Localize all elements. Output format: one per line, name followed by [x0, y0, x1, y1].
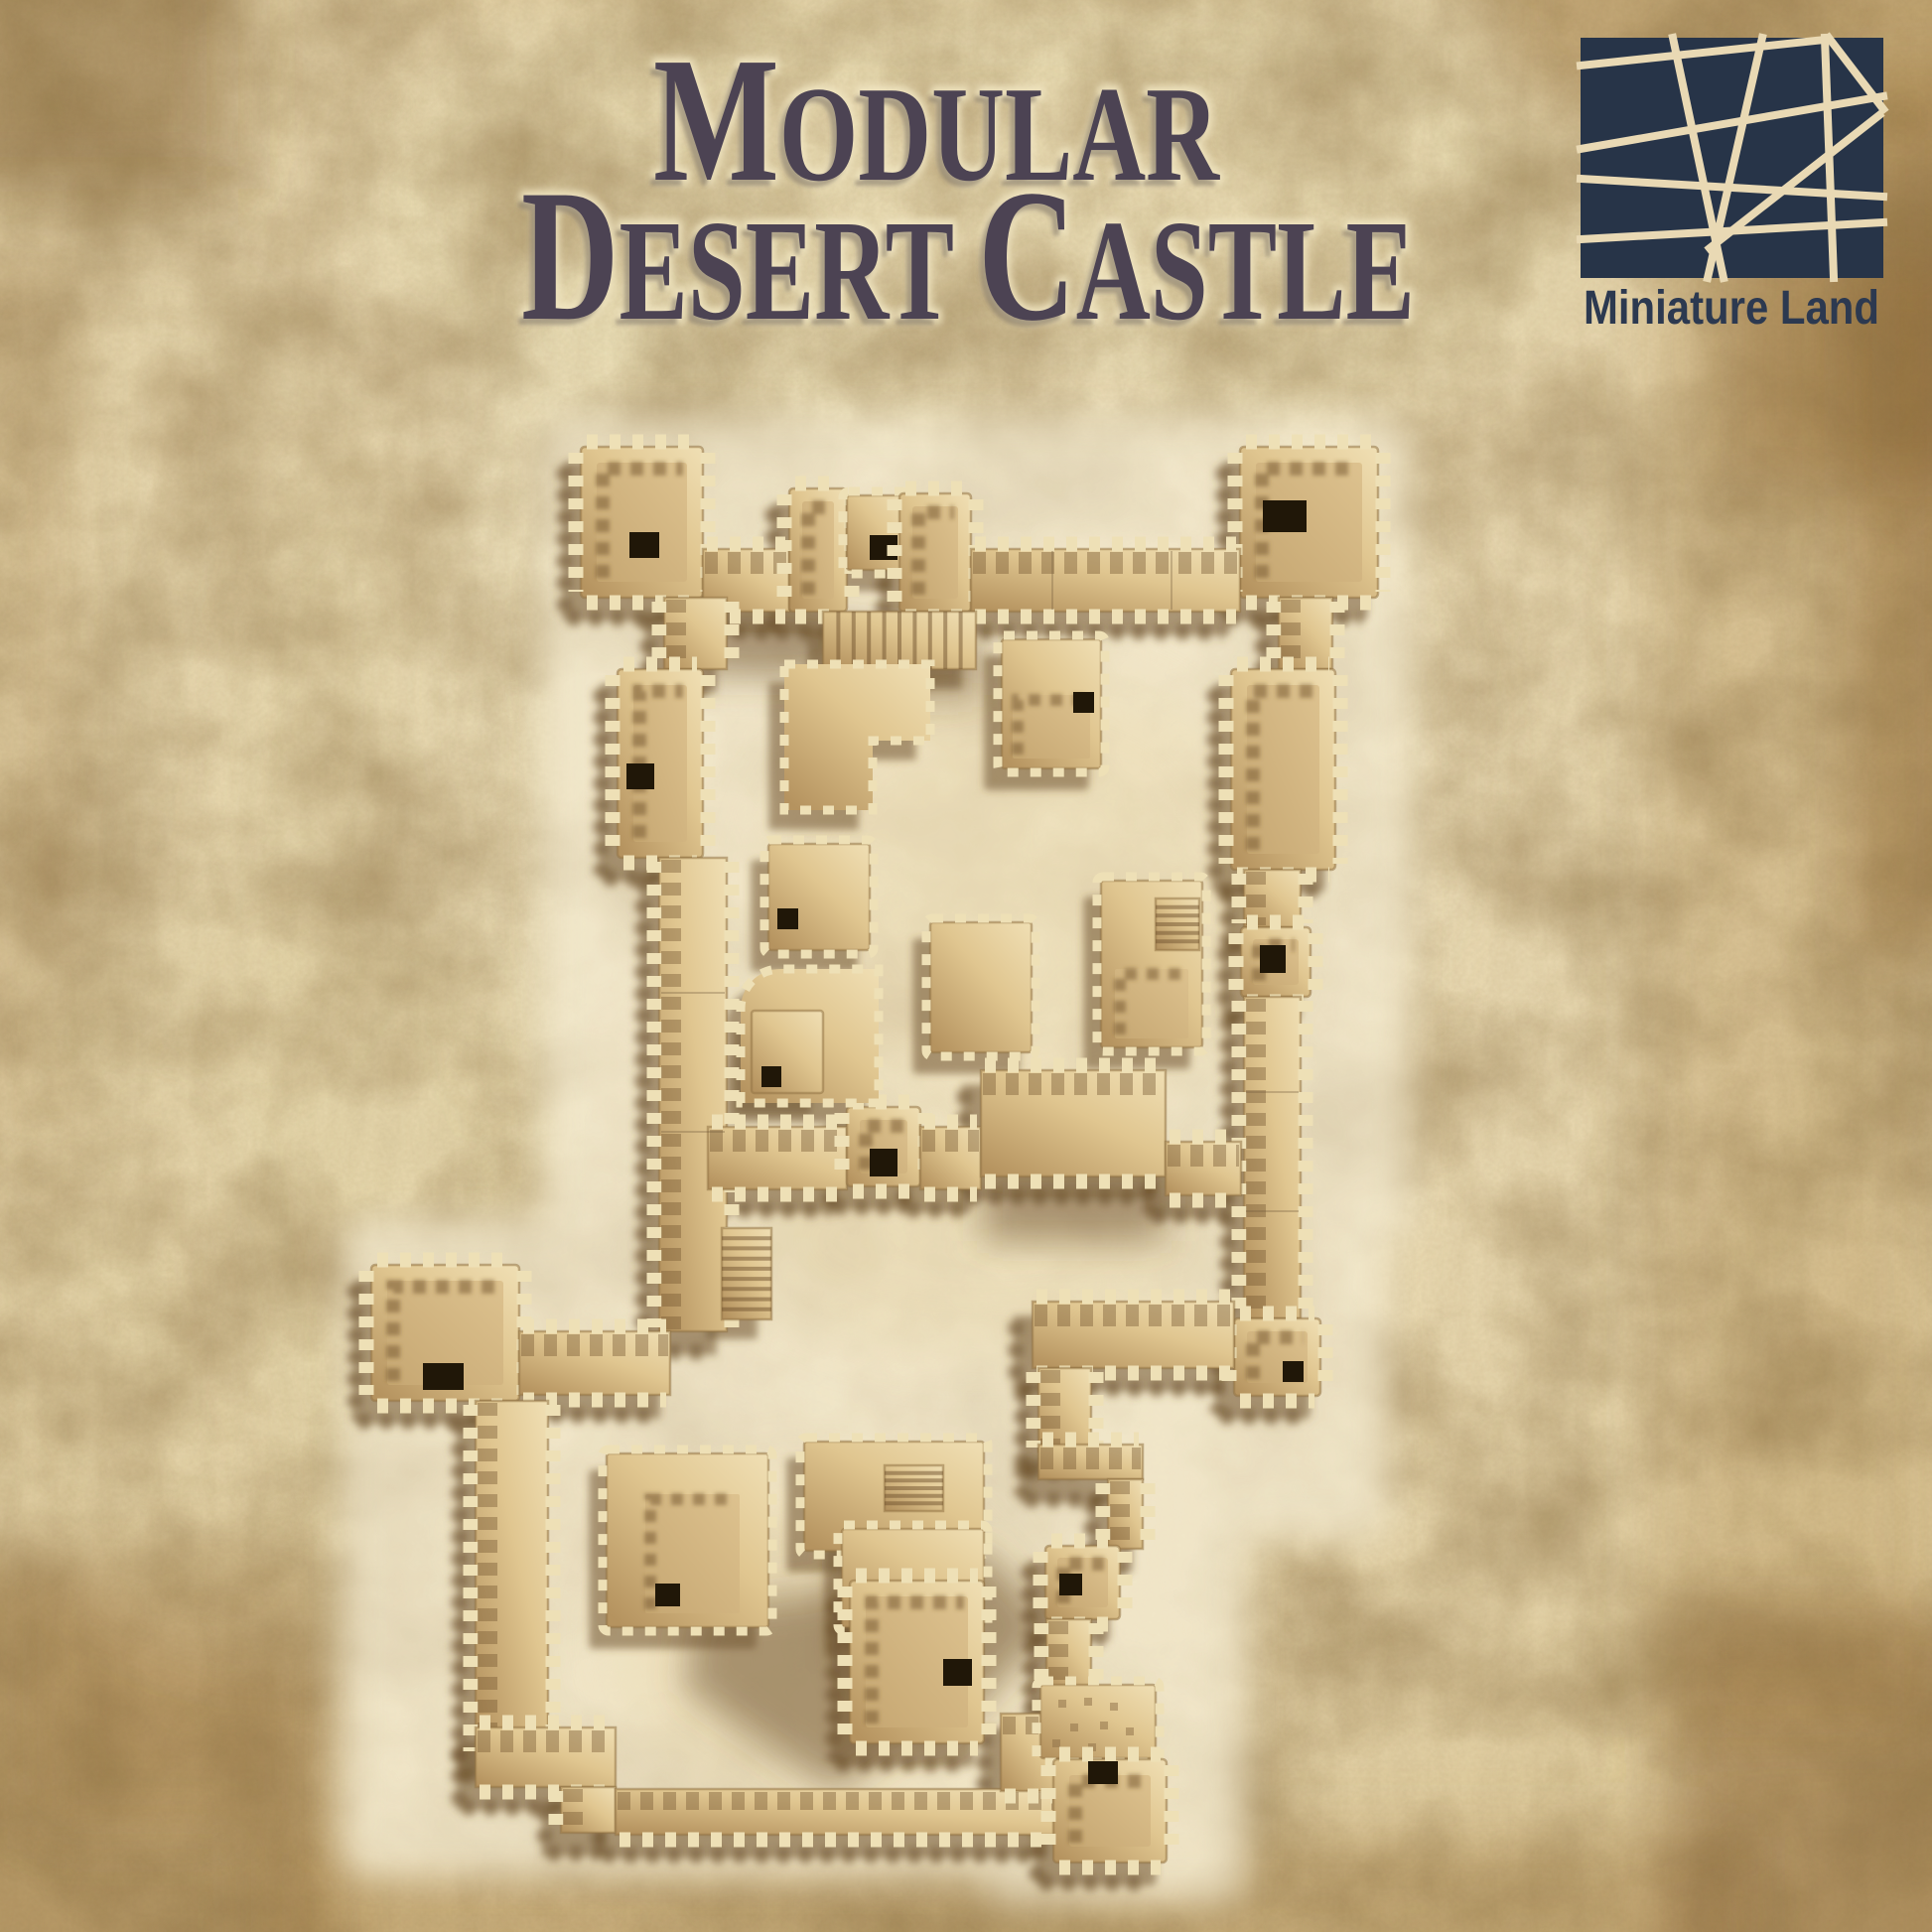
svg-text:Miniature Land: Miniature Land [1584, 282, 1879, 335]
